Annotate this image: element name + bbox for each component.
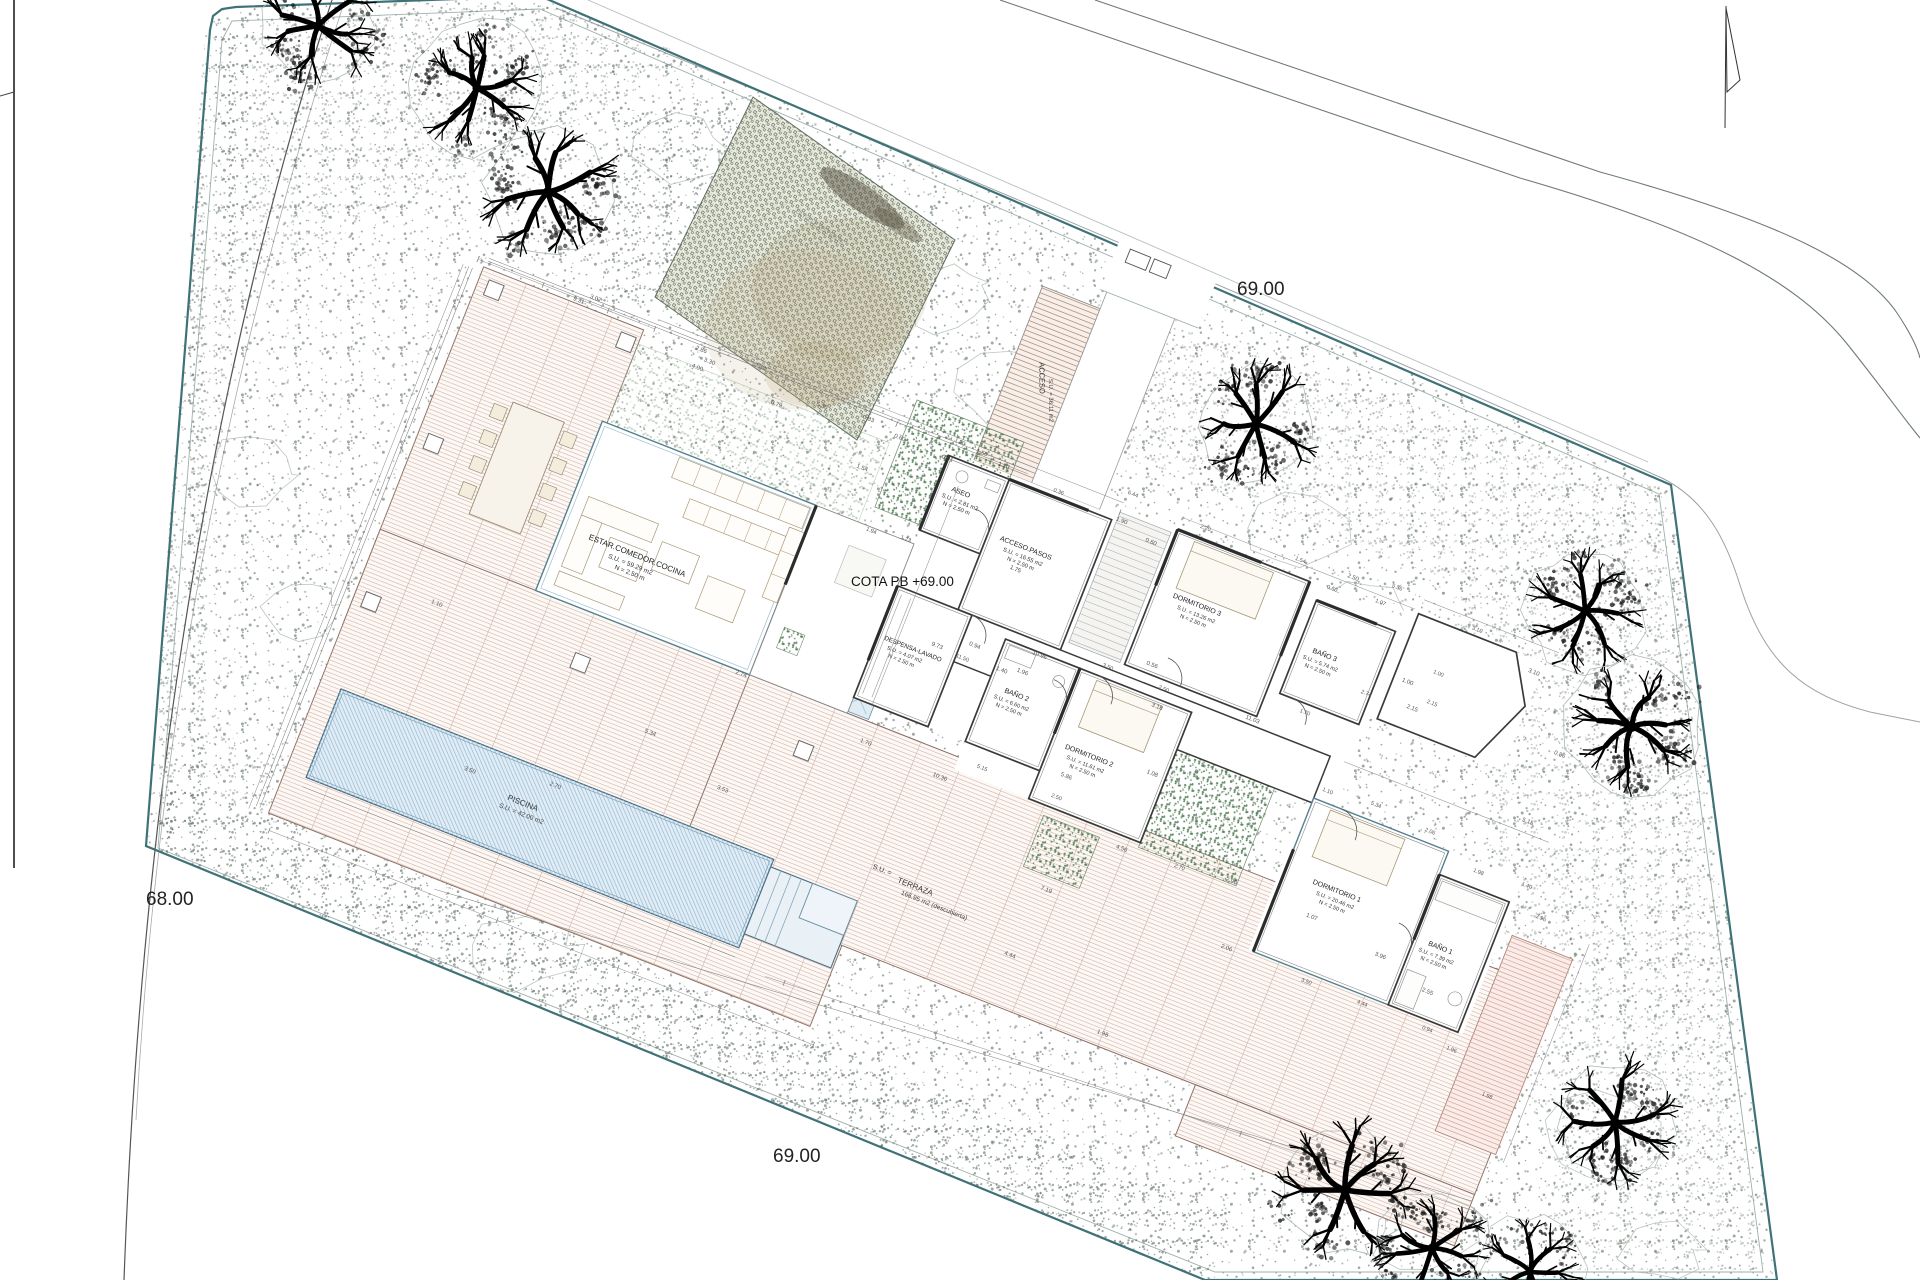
svg-text:S.U. = 36.11 m2: S.U. = 36.11 m2 <box>1047 379 1053 423</box>
svg-text:69.00: 69.00 <box>773 1146 821 1167</box>
svg-text:COTA PB +69.00: COTA PB +69.00 <box>851 574 954 589</box>
svg-text:69.00: 69.00 <box>1237 279 1285 300</box>
svg-text:ACCESO: ACCESO <box>1037 362 1046 394</box>
svg-text:68.00: 68.00 <box>146 889 194 910</box>
